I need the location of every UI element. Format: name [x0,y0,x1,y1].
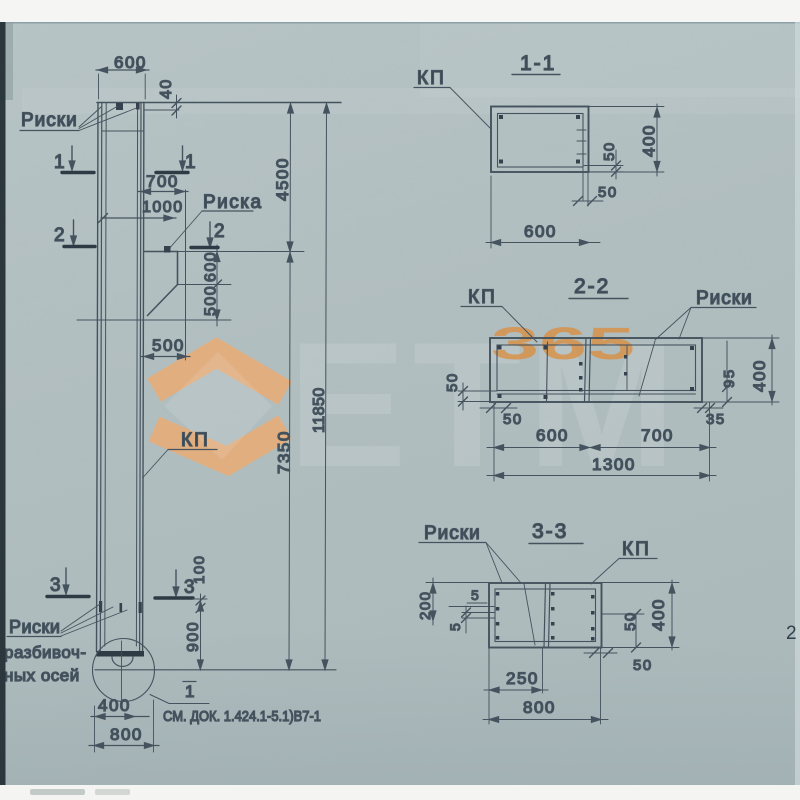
svg-text:Риска: Риска [203,192,263,213]
svg-text:200: 200 [417,590,434,620]
svg-text:50: 50 [444,372,461,392]
svg-text:50: 50 [622,611,639,631]
svg-text:2: 2 [214,221,225,242]
svg-text:4500: 4500 [273,157,292,201]
svg-text:500: 500 [203,285,220,316]
svg-text:КП: КП [417,68,446,89]
svg-text:600: 600 [203,251,220,282]
svg-text:600: 600 [536,426,569,445]
svg-text:700: 700 [641,426,674,445]
svg-text:800: 800 [523,698,556,717]
svg-text:1: 1 [54,152,65,173]
svg-text:КП: КП [181,430,210,451]
svg-text:1: 1 [185,682,194,701]
svg-text:800: 800 [110,725,143,744]
svg-text:600: 600 [114,53,147,72]
svg-text:Риски: Риски [21,110,78,131]
svg-text:1300: 1300 [592,455,636,474]
svg-text:50: 50 [633,657,653,674]
svg-text:3: 3 [50,575,61,596]
svg-text:1000: 1000 [142,199,184,216]
svg-text:11850: 11850 [311,387,328,433]
svg-text:1: 1 [185,152,196,173]
svg-text:ных осей: ных осей [4,666,80,685]
svg-text:50: 50 [503,411,523,428]
svg-text:40: 40 [158,78,175,99]
svg-text:5: 5 [447,623,463,631]
svg-text:900: 900 [185,621,202,652]
svg-text:2: 2 [786,623,797,644]
svg-text:600: 600 [524,222,557,241]
svg-text:разбивоч-: разбивоч- [4,643,87,662]
svg-text:95: 95 [721,368,738,388]
svg-text:3-3: 3-3 [532,520,568,543]
svg-text:СМ. ДОК. 1.424.1-5.1)В7-1: СМ. ДОК. 1.424.1-5.1)В7-1 [163,708,321,725]
svg-text:50: 50 [598,184,618,201]
svg-text:400: 400 [640,124,659,157]
svg-text:365: 365 [491,318,635,369]
svg-text:2-2: 2-2 [574,275,610,298]
svg-text:400: 400 [98,696,131,715]
svg-text:КП: КП [468,287,497,308]
svg-text:250: 250 [506,669,539,688]
svg-text:Риски: Риски [424,523,481,544]
svg-text:2: 2 [54,225,65,246]
svg-text:Риски: Риски [9,617,61,637]
svg-text:7350: 7350 [275,430,294,474]
svg-text:35: 35 [706,411,726,428]
svg-text:400: 400 [649,598,668,631]
svg-text:1-1: 1-1 [520,52,556,75]
svg-text:50: 50 [601,141,618,161]
svg-text:400: 400 [750,359,769,392]
svg-text:500: 500 [152,336,185,355]
svg-text:5: 5 [471,587,479,603]
svg-text:Риски: Риски [696,288,753,309]
svg-text:КП: КП [622,539,651,560]
svg-text:100: 100 [191,554,208,584]
